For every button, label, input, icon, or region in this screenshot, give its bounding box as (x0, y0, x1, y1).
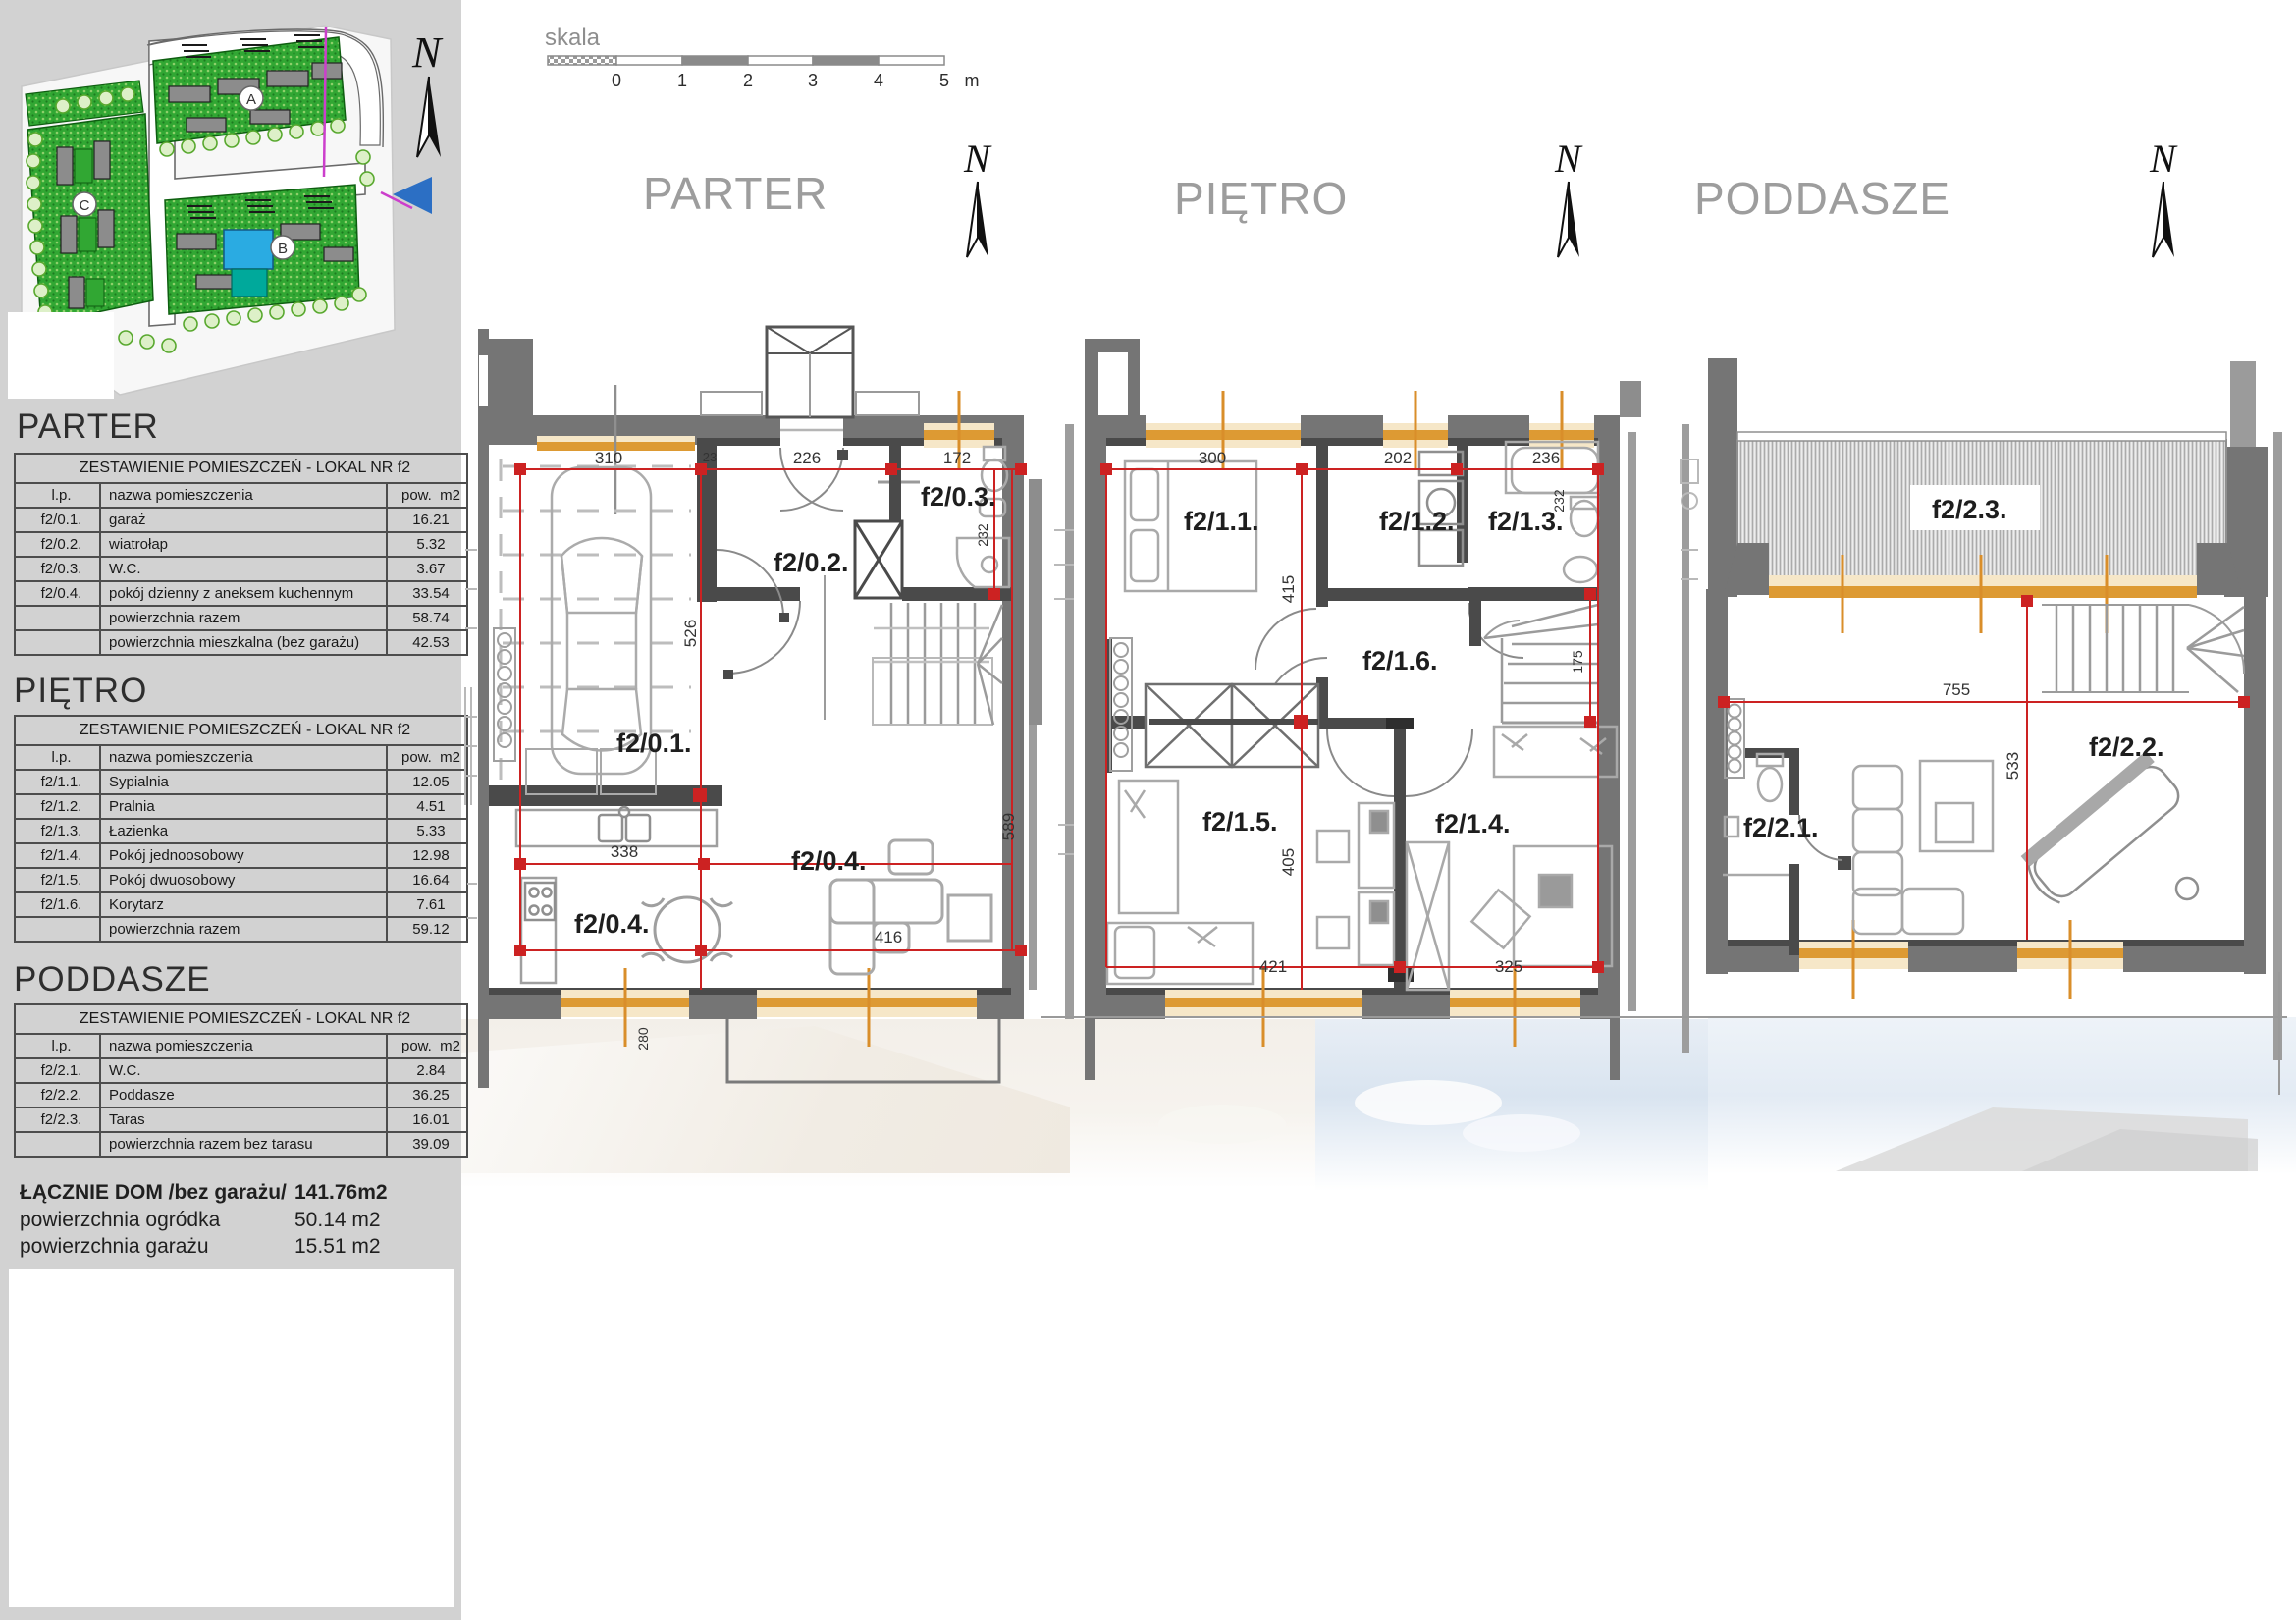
svg-text:f2/2.2.: f2/2.2. (2089, 732, 2164, 762)
svg-text:f2/0.2.: f2/0.2. (774, 548, 849, 577)
svg-text:f2/0.3.: f2/0.3. (921, 482, 996, 512)
svg-text:N: N (1554, 136, 1583, 181)
svg-text:236: 236 (1532, 449, 1560, 467)
svg-text:f2/0.4.: f2/0.4. (574, 909, 650, 939)
svg-text:415: 415 (1279, 575, 1298, 603)
svg-text:589: 589 (999, 813, 1018, 840)
svg-text:416: 416 (875, 928, 902, 946)
svg-text:3: 3 (808, 71, 818, 90)
svg-text:f2/0.1.: f2/0.1. (616, 729, 692, 758)
svg-text:f2/1.1.: f2/1.1. (1184, 507, 1259, 536)
svg-text:23: 23 (703, 450, 717, 464)
svg-text:310: 310 (595, 449, 622, 467)
svg-text:N: N (2149, 136, 2178, 181)
svg-text:f2/1.5.: f2/1.5. (1202, 807, 1278, 837)
svg-text:226: 226 (793, 449, 821, 467)
svg-text:421: 421 (1259, 957, 1287, 976)
svg-text:325: 325 (1495, 957, 1522, 976)
svg-text:A: A (246, 91, 256, 108)
svg-text:405: 405 (1279, 848, 1298, 876)
svg-text:338: 338 (611, 842, 638, 861)
svg-text:280: 280 (635, 1027, 651, 1051)
svg-text:f2/2.1.: f2/2.1. (1743, 813, 1819, 842)
svg-text:f2/1.3.: f2/1.3. (1488, 507, 1564, 536)
svg-text:755: 755 (1943, 680, 1970, 699)
svg-text:0: 0 (612, 71, 621, 90)
svg-text:232: 232 (975, 523, 990, 547)
svg-text:f2/1.4.: f2/1.4. (1435, 809, 1511, 838)
svg-text:f2/1.6.: f2/1.6. (1362, 646, 1438, 675)
svg-text:172: 172 (943, 449, 971, 467)
svg-text:N: N (963, 136, 992, 181)
svg-text:300: 300 (1199, 449, 1226, 467)
svg-text:5: 5 (939, 71, 949, 90)
svg-text:533: 533 (2003, 752, 2022, 780)
svg-text:f2/0.4.: f2/0.4. (791, 846, 867, 876)
svg-text:m: m (965, 71, 980, 90)
svg-text:202: 202 (1384, 449, 1412, 467)
svg-text:f2/2.3.: f2/2.3. (1932, 495, 2007, 524)
svg-text:B: B (278, 241, 288, 257)
svg-text:N: N (411, 28, 444, 77)
svg-text:C: C (80, 197, 90, 214)
svg-text:f2/1.2.: f2/1.2. (1379, 507, 1455, 536)
svg-text:2: 2 (743, 71, 753, 90)
svg-text:175: 175 (1570, 650, 1585, 674)
svg-text:526: 526 (681, 620, 700, 647)
svg-text:4: 4 (874, 71, 883, 90)
svg-text:1: 1 (677, 71, 687, 90)
